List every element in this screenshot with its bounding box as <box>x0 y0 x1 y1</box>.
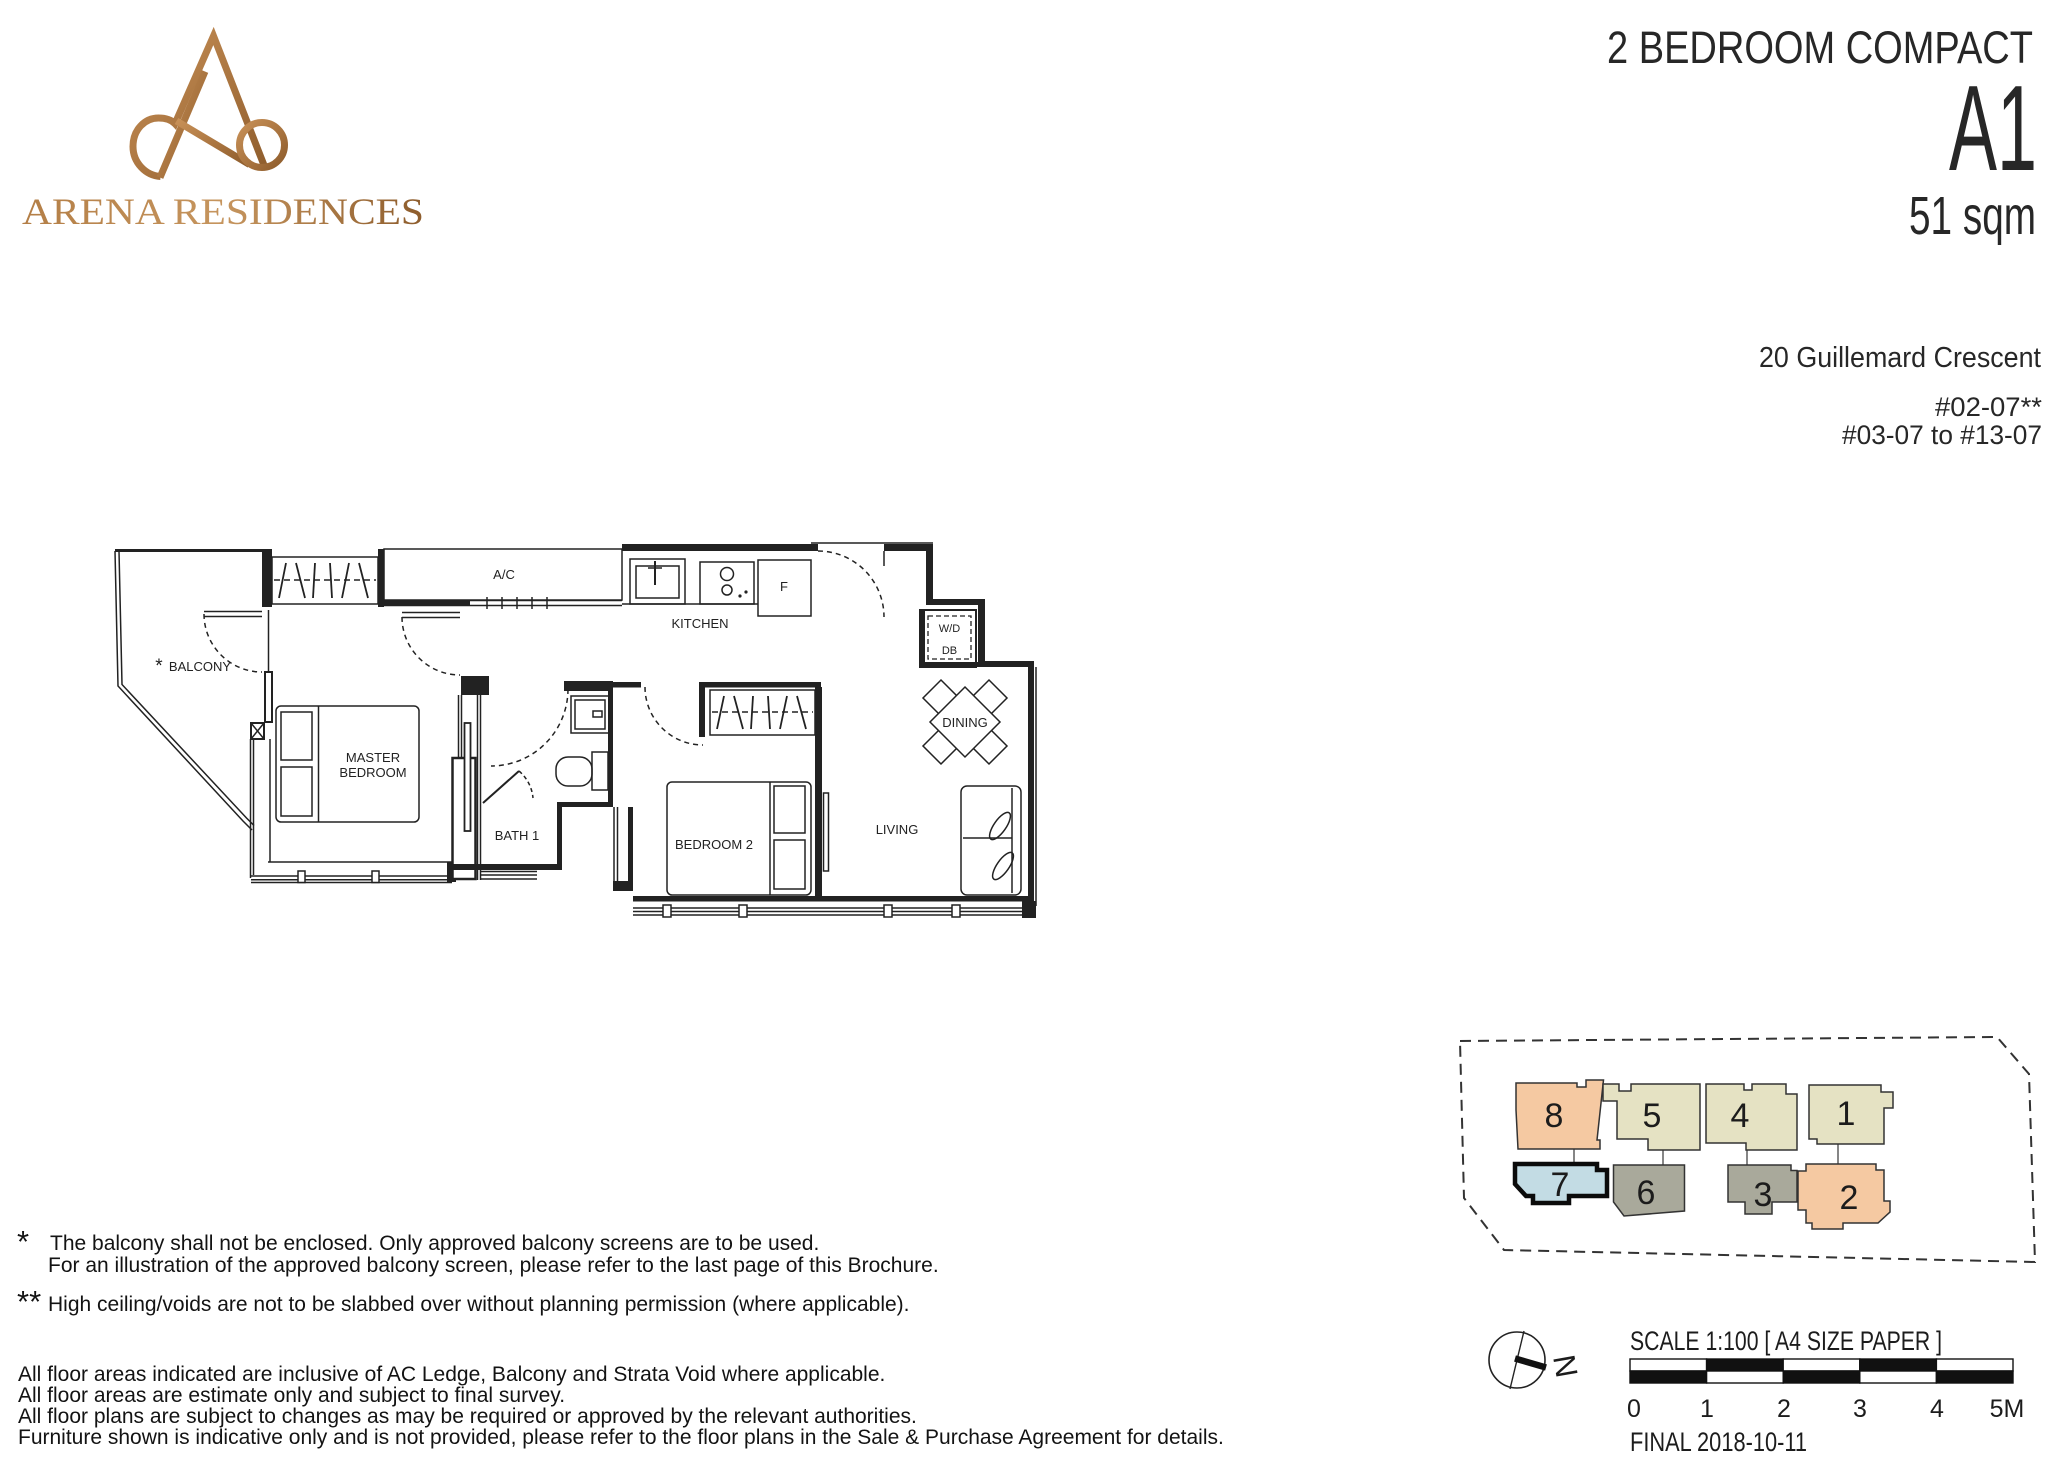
svg-text:DB: DB <box>942 645 957 657</box>
svg-text:High ceiling/voids are not to: High ceiling/voids are not to be slabbed… <box>48 1293 910 1316</box>
svg-text:4: 4 <box>1731 1097 1750 1135</box>
svg-text:3: 3 <box>1754 1176 1773 1214</box>
svg-text:#02-07**: #02-07** <box>1935 392 2042 422</box>
svg-text:7: 7 <box>1551 1166 1570 1204</box>
svg-text:ARENA RESIDENCES: ARENA RESIDENCES <box>22 192 424 233</box>
svg-text:All floor areas indicated are: All floor areas indicated are inclusive … <box>18 1363 885 1386</box>
svg-text:BEDROOM: BEDROOM <box>339 765 406 780</box>
svg-text:*: * <box>155 656 163 677</box>
svg-text:A1: A1 <box>1949 60 2037 196</box>
svg-text:*: * <box>17 1224 29 1259</box>
svg-text:#03-07 to #13-07: #03-07 to #13-07 <box>1842 420 2042 450</box>
svg-text:3: 3 <box>1853 1395 1867 1423</box>
svg-text:DINING: DINING <box>942 715 988 730</box>
svg-text:2: 2 <box>1840 1179 1859 1217</box>
svg-text:N: N <box>1546 1352 1584 1380</box>
svg-text:All floor areas are estimate o: All floor areas are estimate only and su… <box>18 1384 565 1407</box>
svg-text:1: 1 <box>1700 1395 1714 1423</box>
svg-text:0: 0 <box>1627 1395 1641 1423</box>
svg-text:SCALE 1:100 [ A4 SIZE PAPER ]: SCALE 1:100 [ A4 SIZE PAPER ] <box>1630 1326 1942 1356</box>
svg-text:4: 4 <box>1930 1395 1944 1423</box>
svg-text:5: 5 <box>1643 1097 1662 1135</box>
svg-text:BEDROOM 2: BEDROOM 2 <box>675 837 753 852</box>
svg-text:The balcony shall not be enclo: The balcony shall not be enclosed. Only … <box>50 1232 819 1255</box>
svg-text:Furniture shown is indicative: Furniture shown is indicative only and i… <box>18 1426 1224 1449</box>
svg-text:A/C: A/C <box>493 567 515 582</box>
svg-text:1: 1 <box>1837 1095 1856 1133</box>
svg-text:6: 6 <box>1637 1174 1656 1212</box>
svg-text:5M: 5M <box>1990 1395 2025 1423</box>
svg-text:LIVING: LIVING <box>876 822 919 837</box>
svg-text:For an illustration of the app: For an illustration of the approved balc… <box>48 1254 939 1277</box>
svg-text:MASTER: MASTER <box>346 750 400 765</box>
svg-text:20 Guillemard Crescent: 20 Guillemard Crescent <box>1759 342 2041 374</box>
svg-text:BALCONY: BALCONY <box>169 659 231 674</box>
svg-text:KITCHEN: KITCHEN <box>671 616 728 631</box>
svg-text:51 sqm: 51 sqm <box>1909 186 2036 246</box>
svg-text:FINAL 2018-10-11: FINAL 2018-10-11 <box>1630 1427 1807 1457</box>
svg-text:F: F <box>780 579 788 594</box>
svg-text:8: 8 <box>1545 1097 1564 1135</box>
svg-text:All floor plans are subject to: All floor plans are subject to changes a… <box>18 1405 917 1428</box>
svg-text:W/D: W/D <box>939 623 960 635</box>
svg-text:2: 2 <box>1777 1395 1791 1423</box>
svg-text:**: ** <box>17 1284 41 1319</box>
svg-text:BATH 1: BATH 1 <box>495 828 540 843</box>
